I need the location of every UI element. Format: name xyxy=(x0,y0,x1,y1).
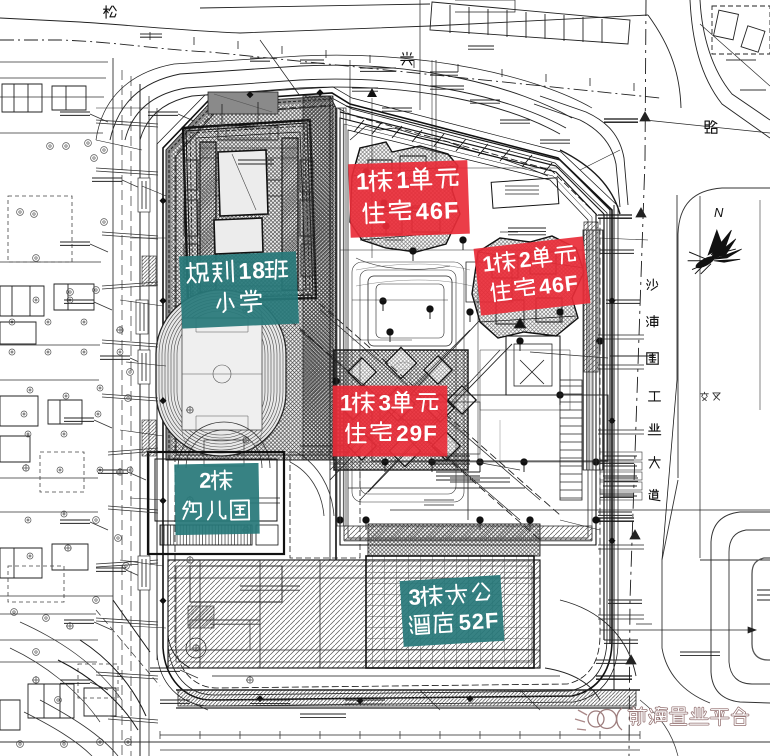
svg-text:F: F xyxy=(484,608,499,634)
svg-text:1: 1 xyxy=(340,390,353,415)
svg-text:9: 9 xyxy=(410,421,423,446)
svg-text:F: F xyxy=(563,271,579,296)
svg-text:F: F xyxy=(423,421,437,446)
svg-text:1: 1 xyxy=(396,167,410,193)
svg-text:2: 2 xyxy=(471,609,485,635)
svg-text:8: 8 xyxy=(252,257,266,284)
svg-text:3: 3 xyxy=(408,584,422,610)
svg-text:3: 3 xyxy=(379,390,392,415)
svg-text:2: 2 xyxy=(199,469,211,493)
svg-text:6: 6 xyxy=(429,198,443,224)
svg-text:F: F xyxy=(443,197,458,223)
svg-text:4: 4 xyxy=(415,198,429,224)
svg-text:2: 2 xyxy=(396,421,409,446)
svg-text:1: 1 xyxy=(356,168,370,194)
svg-text:5: 5 xyxy=(458,609,472,635)
svg-text:N: N xyxy=(714,205,724,220)
svg-text:1: 1 xyxy=(238,258,252,285)
